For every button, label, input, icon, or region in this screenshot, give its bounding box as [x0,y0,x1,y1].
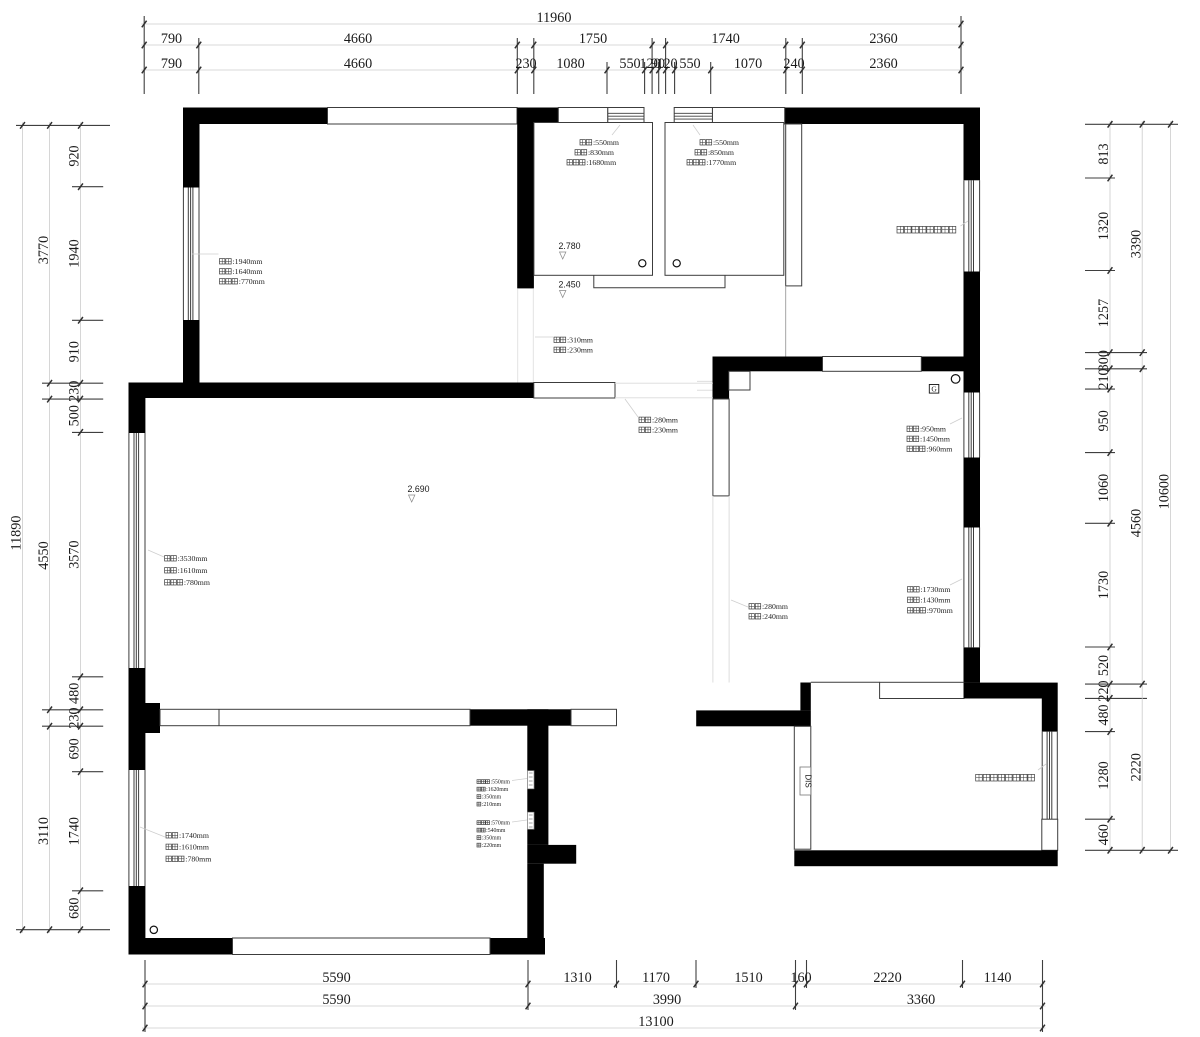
svg-text::830mm: :830mm [588,148,614,157]
svg-text:240: 240 [783,56,804,72]
svg-text:790: 790 [161,31,182,47]
svg-text::780mm: :780mm [185,855,211,864]
svg-text:2.450: 2.450 [559,280,581,290]
svg-text:2.780: 2.780 [559,241,581,251]
svg-text:13100: 13100 [638,1014,673,1030]
svg-text:1750: 1750 [579,31,607,47]
svg-text:690: 690 [67,738,83,759]
svg-text::1680mm: :1680mm [586,158,616,167]
svg-text:10600: 10600 [1157,474,1173,509]
svg-text::1430mm: :1430mm [921,596,951,605]
svg-text:230: 230 [515,56,536,72]
svg-text:520: 520 [1096,655,1112,676]
svg-text::1640mm: :1640mm [233,267,263,276]
svg-text::1610mm: :1610mm [179,843,209,852]
svg-text:1940: 1940 [67,239,83,267]
svg-text:3770: 3770 [36,236,52,264]
svg-text:790: 790 [161,56,182,72]
svg-text::350mm: :350mm [482,836,502,842]
svg-text:920: 920 [67,145,83,166]
svg-text::1770mm: :1770mm [706,158,736,167]
svg-text:4660: 4660 [344,56,372,72]
svg-text:3570: 3570 [67,540,83,568]
svg-text::570mm: :570mm [491,821,511,827]
svg-text::220mm: :220mm [482,843,502,849]
svg-text::1450mm: :1450mm [920,435,950,444]
svg-text::770mm: :770mm [239,277,265,286]
svg-text::550mm: :550mm [491,780,511,786]
svg-text::230mm: :230mm [567,346,593,355]
svg-text::230mm: :230mm [652,426,678,435]
svg-text:4660: 4660 [344,31,372,47]
svg-text:1730: 1730 [1096,571,1112,599]
svg-text::1620mm: :1620mm [486,787,509,793]
svg-text::1730mm: :1730mm [921,585,951,594]
svg-text:DIS: DIS [804,774,813,787]
svg-text:1280: 1280 [1096,761,1112,789]
svg-text:3110: 3110 [36,817,52,845]
svg-text::280mm: :280mm [762,602,788,611]
svg-text::210mm: :210mm [482,802,502,808]
svg-text:3360: 3360 [907,992,935,1008]
svg-text:4550: 4550 [36,541,52,569]
svg-text:2220: 2220 [1128,753,1144,781]
svg-text:2360: 2360 [869,31,897,47]
svg-text:1080: 1080 [556,56,584,72]
svg-text:1060: 1060 [1096,474,1112,502]
svg-text:11960: 11960 [537,10,572,26]
svg-text:2.690: 2.690 [408,484,430,494]
svg-text::780mm: :780mm [184,578,210,587]
svg-text:230: 230 [67,381,83,402]
svg-text:1740: 1740 [67,817,83,845]
svg-text::550mm: :550mm [593,138,619,147]
svg-text:950: 950 [1096,410,1112,431]
svg-text::850mm: :850mm [708,148,734,157]
svg-text:813: 813 [1096,143,1112,164]
svg-text:1320: 1320 [1096,212,1112,240]
svg-text:2220: 2220 [873,970,901,986]
svg-text::3530mm: :3530mm [178,554,208,563]
svg-text::540mm: :540mm [486,828,506,834]
svg-text:11890: 11890 [9,516,25,551]
svg-text:1170: 1170 [642,970,670,986]
svg-text:210: 210 [1096,368,1112,389]
svg-text:1070: 1070 [734,56,762,72]
svg-text:480: 480 [1096,704,1112,725]
svg-text:1740: 1740 [711,31,739,47]
svg-text:220: 220 [1096,680,1112,701]
svg-text:1510: 1510 [734,970,762,986]
svg-text::1740mm: :1740mm [179,831,209,840]
svg-text:230: 230 [67,707,83,728]
svg-text:500: 500 [67,405,83,426]
svg-text:4560: 4560 [1128,509,1144,537]
svg-text::960mm: :960mm [926,445,952,454]
svg-text:3390: 3390 [1128,230,1144,258]
svg-text::550mm: :550mm [713,138,739,147]
svg-text::280mm: :280mm [652,416,678,425]
svg-text:480: 480 [67,683,83,704]
svg-text:910: 910 [67,341,83,362]
svg-text:3990: 3990 [653,992,681,1008]
svg-text::1610mm: :1610mm [178,566,208,575]
svg-text:1140: 1140 [984,970,1012,986]
svg-text::240mm: :240mm [762,612,788,621]
svg-text::310mm: :310mm [567,336,593,345]
svg-text:550: 550 [619,56,640,72]
svg-text:5590: 5590 [322,992,350,1008]
svg-text:G: G [931,385,937,394]
svg-text:2360: 2360 [869,56,897,72]
svg-text:5590: 5590 [322,970,350,986]
svg-text::350mm: :350mm [482,795,502,801]
svg-text:1257: 1257 [1096,299,1112,327]
svg-text:160: 160 [790,970,811,986]
svg-text:680: 680 [67,898,83,919]
svg-text:300: 300 [1096,350,1112,371]
svg-text::970mm: :970mm [927,606,953,615]
svg-text:550: 550 [679,56,700,72]
svg-text:460: 460 [1096,824,1112,845]
svg-text:1310: 1310 [563,970,591,986]
svg-text:120: 120 [656,56,677,72]
svg-text::1940mm: :1940mm [233,257,263,266]
svg-text::950mm: :950mm [920,425,946,434]
